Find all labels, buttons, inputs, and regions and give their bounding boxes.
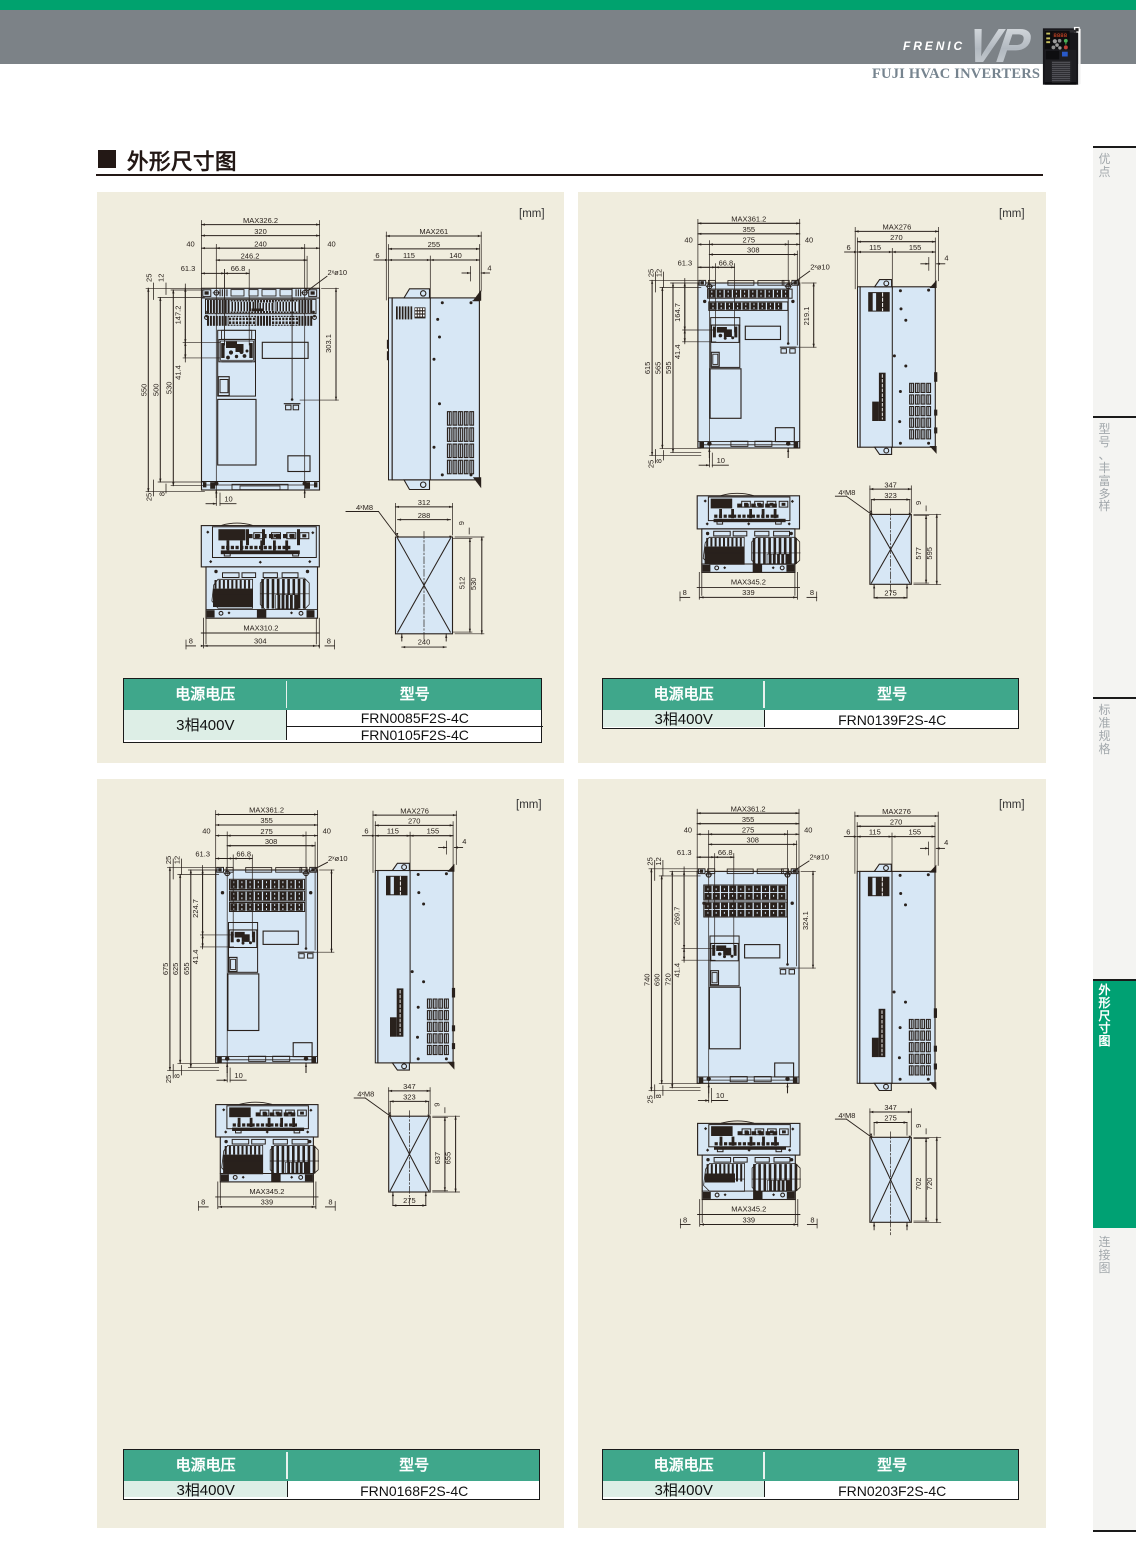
svg-text:40: 40 bbox=[323, 827, 331, 836]
svg-text:155: 155 bbox=[427, 827, 440, 836]
svg-text:25: 25 bbox=[144, 274, 153, 282]
svg-text:2ˣø10: 2ˣø10 bbox=[328, 854, 348, 863]
svg-text:MAX276: MAX276 bbox=[882, 807, 911, 816]
svg-text:530: 530 bbox=[164, 382, 173, 395]
svg-text:40: 40 bbox=[684, 236, 692, 245]
svg-text:224.7: 224.7 bbox=[191, 899, 200, 918]
svg-text:2ˣø10: 2ˣø10 bbox=[328, 268, 348, 277]
svg-text:324.1: 324.1 bbox=[801, 911, 810, 930]
svg-text:637: 637 bbox=[433, 1152, 442, 1165]
svg-text:720: 720 bbox=[925, 1178, 934, 1191]
svg-text:690: 690 bbox=[653, 974, 662, 987]
svg-text:304: 304 bbox=[254, 637, 267, 646]
svg-text:8: 8 bbox=[201, 1198, 205, 1207]
svg-text:40: 40 bbox=[186, 239, 194, 248]
svg-text:8: 8 bbox=[655, 459, 664, 463]
svg-text:MAX326.2: MAX326.2 bbox=[243, 216, 278, 225]
svg-text:355: 355 bbox=[742, 815, 755, 824]
svg-text:8: 8 bbox=[654, 1094, 663, 1098]
svg-text:40: 40 bbox=[804, 825, 812, 834]
svg-text:320: 320 bbox=[254, 227, 267, 236]
svg-text:9: 9 bbox=[914, 501, 923, 505]
svg-text:347: 347 bbox=[884, 1103, 897, 1112]
svg-text:147.2: 147.2 bbox=[173, 306, 182, 325]
svg-text:625: 625 bbox=[171, 963, 180, 976]
svg-text:270: 270 bbox=[890, 233, 903, 242]
svg-text:275: 275 bbox=[884, 1114, 897, 1123]
svg-text:41.4: 41.4 bbox=[191, 950, 200, 965]
svg-text:12: 12 bbox=[157, 274, 166, 282]
svg-text:MAX361.2: MAX361.2 bbox=[731, 215, 766, 224]
svg-text:303.1: 303.1 bbox=[324, 334, 333, 353]
svg-text:10: 10 bbox=[717, 456, 725, 465]
svg-text:308: 308 bbox=[747, 246, 760, 255]
svg-text:61.3: 61.3 bbox=[181, 264, 196, 273]
svg-text:275: 275 bbox=[743, 236, 756, 245]
svg-text:323: 323 bbox=[884, 491, 897, 500]
svg-text:288: 288 bbox=[418, 511, 431, 520]
svg-text:10: 10 bbox=[224, 494, 232, 503]
svg-text:40: 40 bbox=[805, 236, 813, 245]
svg-text:66.8: 66.8 bbox=[719, 258, 734, 267]
svg-text:720: 720 bbox=[663, 973, 672, 986]
svg-text:10: 10 bbox=[716, 1091, 724, 1100]
svg-text:115: 115 bbox=[869, 243, 881, 252]
svg-text:MAX345.2: MAX345.2 bbox=[731, 578, 766, 587]
svg-text:4ˣM8: 4ˣM8 bbox=[838, 1111, 855, 1120]
svg-text:270: 270 bbox=[408, 817, 421, 826]
svg-text:8: 8 bbox=[328, 1198, 332, 1207]
svg-text:240: 240 bbox=[254, 239, 267, 248]
svg-text:512: 512 bbox=[457, 577, 466, 590]
svg-text:339: 339 bbox=[261, 1198, 274, 1207]
svg-text:9: 9 bbox=[433, 1103, 442, 1107]
svg-text:8: 8 bbox=[683, 1215, 687, 1224]
svg-text:275: 275 bbox=[403, 1196, 416, 1205]
svg-text:246.2: 246.2 bbox=[241, 251, 260, 260]
svg-text:355: 355 bbox=[743, 225, 756, 234]
svg-text:323: 323 bbox=[403, 1093, 416, 1102]
svg-text:61.3: 61.3 bbox=[678, 258, 693, 267]
svg-text:8: 8 bbox=[327, 637, 331, 646]
svg-text:MAX261: MAX261 bbox=[419, 227, 448, 236]
svg-text:219.1: 219.1 bbox=[802, 307, 811, 326]
svg-text:675: 675 bbox=[161, 963, 170, 976]
svg-text:40: 40 bbox=[202, 827, 210, 836]
svg-text:40: 40 bbox=[327, 239, 335, 248]
svg-text:12: 12 bbox=[655, 269, 664, 277]
svg-text:MAX361.2: MAX361.2 bbox=[731, 804, 766, 813]
svg-text:255: 255 bbox=[428, 240, 441, 249]
svg-text:66.8: 66.8 bbox=[718, 848, 733, 857]
svg-text:4ˣM8: 4ˣM8 bbox=[838, 488, 855, 497]
svg-text:275: 275 bbox=[260, 827, 273, 836]
svg-text:550: 550 bbox=[139, 384, 148, 397]
svg-text:25: 25 bbox=[144, 493, 153, 501]
svg-text:4: 4 bbox=[944, 253, 948, 262]
svg-text:312: 312 bbox=[418, 498, 431, 507]
svg-text:275: 275 bbox=[742, 826, 755, 835]
svg-text:4ˣM8: 4ˣM8 bbox=[356, 503, 373, 512]
svg-text:9: 9 bbox=[457, 521, 466, 525]
svg-text:308: 308 bbox=[746, 836, 759, 845]
svg-text:6: 6 bbox=[846, 828, 850, 837]
svg-text:61.3: 61.3 bbox=[195, 850, 210, 859]
svg-text:740: 740 bbox=[642, 974, 651, 987]
svg-text:655: 655 bbox=[182, 962, 191, 975]
svg-text:308: 308 bbox=[265, 837, 278, 846]
svg-text:577: 577 bbox=[914, 547, 923, 560]
svg-text:615: 615 bbox=[643, 362, 652, 375]
svg-text:66.8: 66.8 bbox=[236, 850, 251, 859]
svg-text:155: 155 bbox=[909, 243, 922, 252]
svg-text:MAX276: MAX276 bbox=[883, 223, 912, 232]
svg-text:40: 40 bbox=[684, 825, 692, 834]
svg-text:500: 500 bbox=[151, 384, 160, 397]
svg-text:41.4: 41.4 bbox=[173, 365, 182, 380]
svg-text:2ˣø10: 2ˣø10 bbox=[810, 263, 830, 272]
svg-text:8888: 8888 bbox=[1053, 32, 1067, 39]
svg-text:6: 6 bbox=[375, 251, 379, 260]
svg-text:270: 270 bbox=[890, 818, 903, 827]
svg-text:115: 115 bbox=[869, 828, 881, 837]
svg-text:8: 8 bbox=[158, 492, 167, 496]
svg-text:4: 4 bbox=[944, 838, 948, 847]
svg-text:530: 530 bbox=[469, 578, 478, 591]
svg-text:339: 339 bbox=[743, 1215, 756, 1224]
svg-text:8: 8 bbox=[810, 588, 814, 597]
svg-text:240: 240 bbox=[418, 638, 431, 647]
svg-text:355: 355 bbox=[260, 816, 273, 825]
svg-text:10: 10 bbox=[234, 1071, 242, 1080]
svg-text:12: 12 bbox=[654, 857, 663, 865]
svg-text:MAX276: MAX276 bbox=[400, 806, 429, 815]
svg-text:MAX310.2: MAX310.2 bbox=[243, 624, 278, 633]
svg-text:115: 115 bbox=[387, 827, 399, 836]
svg-text:4: 4 bbox=[462, 837, 466, 846]
svg-text:702: 702 bbox=[914, 1178, 923, 1191]
svg-text:2ˣø10: 2ˣø10 bbox=[810, 853, 830, 862]
svg-text:347: 347 bbox=[403, 1082, 416, 1091]
svg-text:VP: VP bbox=[964, 19, 1034, 66]
svg-text:MAX345.2: MAX345.2 bbox=[249, 1187, 284, 1196]
svg-text:140: 140 bbox=[449, 251, 462, 260]
svg-text:595: 595 bbox=[664, 361, 673, 374]
svg-text:6: 6 bbox=[847, 243, 851, 252]
svg-text:MAX345.2: MAX345.2 bbox=[731, 1205, 766, 1214]
svg-text:155: 155 bbox=[909, 828, 922, 837]
svg-text:164.7: 164.7 bbox=[673, 303, 682, 322]
svg-text:565: 565 bbox=[653, 362, 662, 375]
svg-text:4ˣM8: 4ˣM8 bbox=[357, 1090, 374, 1099]
svg-text:6: 6 bbox=[364, 827, 368, 836]
svg-text:8: 8 bbox=[683, 588, 687, 597]
svg-text:8: 8 bbox=[810, 1215, 814, 1224]
svg-text:8: 8 bbox=[172, 1074, 181, 1078]
svg-text:115: 115 bbox=[403, 251, 415, 260]
svg-text:MAX361.2: MAX361.2 bbox=[249, 806, 284, 815]
svg-text:66.8: 66.8 bbox=[231, 264, 246, 273]
svg-text:41.4: 41.4 bbox=[673, 344, 682, 359]
svg-text:595: 595 bbox=[925, 547, 934, 560]
svg-text:9: 9 bbox=[914, 1124, 923, 1128]
svg-text:275: 275 bbox=[884, 589, 897, 598]
svg-text:41.4: 41.4 bbox=[672, 963, 681, 978]
svg-text:347: 347 bbox=[884, 480, 897, 489]
svg-text:4: 4 bbox=[487, 263, 491, 272]
svg-text:61.3: 61.3 bbox=[677, 848, 692, 857]
svg-text:339: 339 bbox=[742, 588, 755, 597]
svg-text:655: 655 bbox=[444, 1152, 453, 1165]
svg-text:269.7: 269.7 bbox=[672, 907, 681, 926]
svg-text:8: 8 bbox=[189, 637, 193, 646]
svg-text:12: 12 bbox=[172, 856, 181, 864]
